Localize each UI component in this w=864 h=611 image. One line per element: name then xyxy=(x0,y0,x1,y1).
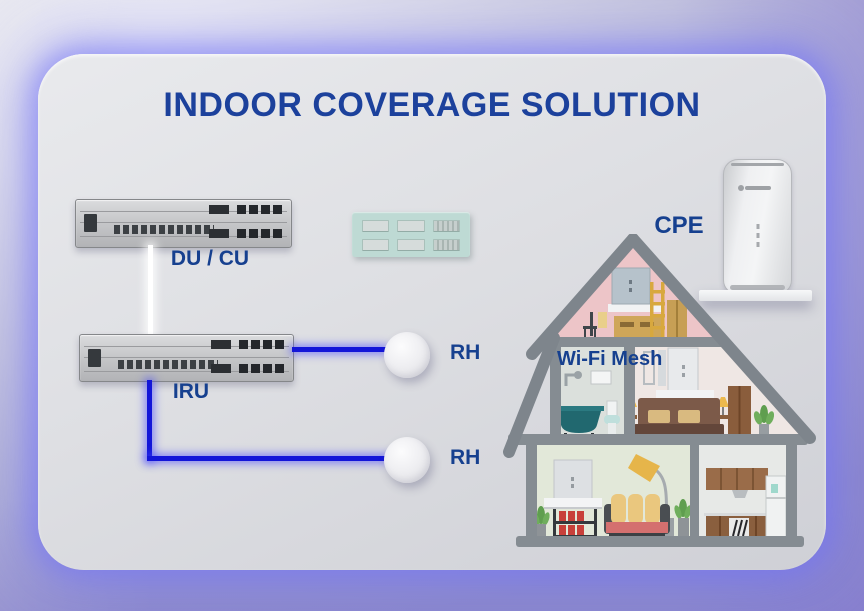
rack-psu xyxy=(84,214,97,232)
rack-ethernet-ports xyxy=(237,229,285,238)
iru-label: IRU xyxy=(146,380,236,404)
panel-slot xyxy=(433,220,460,232)
radio-head-icon xyxy=(384,437,430,483)
rack-psu xyxy=(88,349,101,367)
cable-iru-to-rh-top xyxy=(292,347,386,352)
panel-slot xyxy=(362,220,389,232)
du-cu-label: DU / CU xyxy=(165,247,255,271)
rack-sfp-ports xyxy=(211,364,231,373)
rack-vent-slots xyxy=(114,225,214,234)
wifi-mesh-label: Wi-Fi Mesh xyxy=(557,348,662,371)
wifi-mesh-device-attic-icon xyxy=(612,268,650,304)
panel-slot xyxy=(433,239,460,251)
cable-iru-down xyxy=(147,380,152,461)
cable-iru-to-rh-bottom xyxy=(147,456,390,461)
rack-sfp-ports xyxy=(209,229,229,238)
house-illustration xyxy=(498,234,828,550)
rack-seam xyxy=(80,222,287,223)
patch-panel-icon xyxy=(352,212,470,257)
rack-ethernet-ports xyxy=(239,364,287,373)
cable-du-to-iru xyxy=(148,245,153,337)
panel-slot xyxy=(397,220,424,232)
rack-sfp-ports xyxy=(209,205,229,214)
rack-sfp-ports xyxy=(211,340,231,349)
rack-ethernet-ports xyxy=(239,340,287,349)
du-cu-device-icon xyxy=(75,199,292,248)
rack-ethernet-ports xyxy=(237,205,285,214)
rack-seam xyxy=(84,357,289,358)
radio-head-icon xyxy=(384,332,430,378)
panel-slot xyxy=(397,239,424,251)
wifi-mesh-device-bedroom-icon xyxy=(668,348,698,392)
rh-bottom-label: RH xyxy=(450,446,480,470)
slide: INDOOR COVERAGE SOLUTION DU / CU IRU RH … xyxy=(0,0,864,611)
iru-device-icon xyxy=(79,334,294,382)
cpe-brand-logo xyxy=(745,186,771,190)
rh-top-label: RH xyxy=(450,341,480,365)
panel-slot xyxy=(362,239,389,251)
rack-vent-slots xyxy=(118,360,218,369)
page-title: INDOOR COVERAGE SOLUTION xyxy=(38,86,826,125)
